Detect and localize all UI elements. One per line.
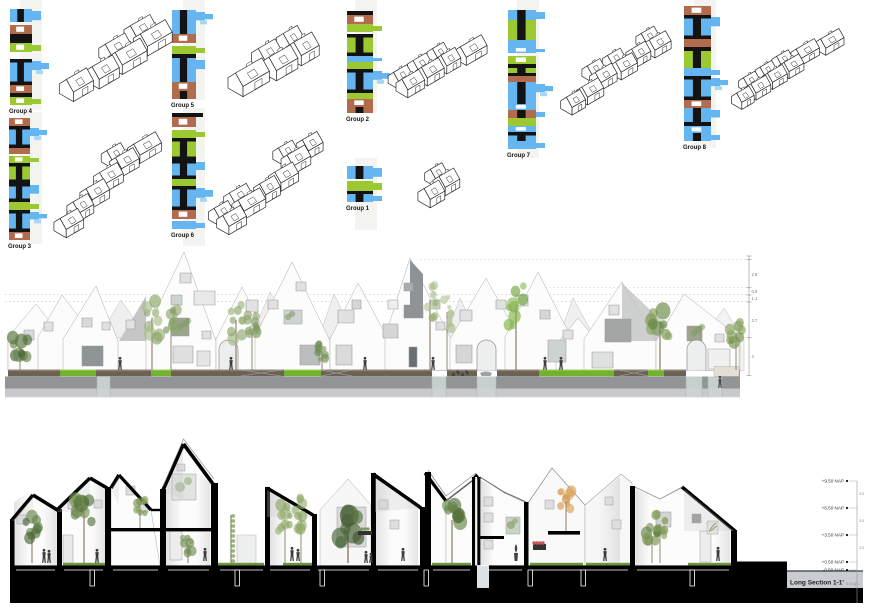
svg-text:3.0: 3.0 <box>859 546 864 550</box>
svg-text:Group 2: Group 2 <box>346 117 370 123</box>
svg-text:3.7: 3.7 <box>752 318 758 323</box>
svg-text:+6.50 NAP: +6.50 NAP <box>822 506 844 511</box>
svg-text:0.9: 0.9 <box>752 289 758 294</box>
svg-text:1.1: 1.1 <box>752 296 758 301</box>
svg-text:Group 5: Group 5 <box>171 103 195 109</box>
svg-text:+3.50 NAP: +3.50 NAP <box>822 533 844 538</box>
svg-text:2.8: 2.8 <box>752 272 758 277</box>
svg-text:Group 7: Group 7 <box>507 153 531 159</box>
svg-text:+0.50 NAP: +0.50 NAP <box>822 560 844 565</box>
svg-text:Group 4: Group 4 <box>9 109 33 115</box>
svg-text:Group 6: Group 6 <box>171 233 195 239</box>
svg-text:Long Section 1-1': Long Section 1-1' <box>790 580 844 587</box>
svg-text:3.0: 3.0 <box>859 519 864 523</box>
svg-text:Group 8: Group 8 <box>683 145 707 151</box>
svg-text:Group 1: Group 1 <box>346 206 370 212</box>
svg-text:3.0: 3.0 <box>859 492 864 496</box>
svg-text:Group 3: Group 3 <box>8 244 32 250</box>
svg-text:-0.50 NAP: -0.50 NAP <box>823 568 844 573</box>
svg-text:+9.50 NAP: +9.50 NAP <box>822 479 844 484</box>
